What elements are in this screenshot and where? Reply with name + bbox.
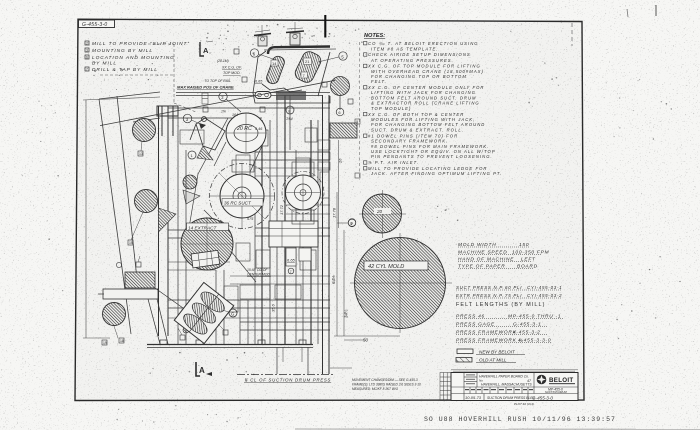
svg-text:FELT.: FELT. [371,79,387,84]
svg-text:DRILL & TAP BY MILL: DRILL & TAP BY MILL [92,67,158,73]
svg-text:60 PLI: 60 PLI [505,285,522,290]
svg-text:SUCT PRESS N.P.: SUCT PRESS N.P. [456,285,505,290]
svg-text:17.72: 17.72 [279,204,284,215]
svg-text:BY MILL: BY MILL [92,61,117,67]
svg-text:⋯TO TOP OF RAIL: ⋯TO TOP OF RAIL [201,79,231,83]
svg-text:PRESS GAGE: PRESS GAGE [456,322,495,328]
svg-text:36 RC SUCT: 36 RC SUCT [224,201,252,206]
svg-text:FELT LENGTHS (BY MILL): FELT LENGTHS (BY MILL) [456,302,546,308]
svg-text:NEW BY BELOIT: NEW BY BELOIT [479,350,516,355]
svg-text:MOUNTING BY MILL: MOUNTING BY MILL [92,48,153,54]
svg-text:3: 3 [86,49,89,53]
svg-text:34½: 34½ [344,309,349,318]
svg-text:OLD AT MILL: OLD AT MILL [479,358,507,363]
svg-text:A: A [199,366,205,375]
svg-text:1⅜: 1⅜ [221,110,226,114]
svg-text:TOP MOD.: TOP MOD. [223,71,241,75]
svg-text:(28.1M): (28.1M) [217,59,229,63]
svg-text:20 RC: 20 RC [236,126,252,132]
svg-text:15: 15 [129,241,133,245]
svg-text:SUCTION DRUM PRESS ELEV.: SUCTION DRUM PRESS ELEV. [487,396,535,400]
svg-text:SUCTION DRUM: SUCTION DRUM [545,390,567,394]
svg-text:15 AY CG OF: 15 AY CG OF [247,268,268,272]
svg-text:CO ⅒ T. AT BELOIT ERECTION USI: CO ⅒ T. AT BELOIT ERECTION USING [368,41,479,46]
svg-text:17.78: 17.78 [332,207,337,218]
svg-text:18: 18 [120,339,124,343]
svg-text:SUCT. DRUM & EXTRACT. ROLL.: SUCT. DRUM & EXTRACT. ROLL. [371,127,464,132]
svg-text:HAVERHILL, MASSACHUSETTS: HAVERHILL, MASSACHUSETTS [481,383,532,387]
svg-text:42 CYL MOLD: 42 CYL MOLD [368,264,404,270]
svg-text:CENTER MOD.: CENTER MOD. [247,273,271,277]
svg-text:575: 575 [247,217,254,221]
svg-text:SO U88 HOVERHILL RUSH 10/11/: SO U88 HOVERHILL RUSH 10/11/96 13:39:57 [424,416,616,423]
svg-text:TOP MODULE): TOP MODULE) [371,106,411,111]
svg-text:CYI-455-03-1: CYI-455-03-1 [527,285,562,290]
svg-text:7⁄84: 7⁄84 [286,117,293,121]
svg-text:CHECK AIRIDE SETUP DIMENSIONS: CHECK AIRIDE SETUP DIMENSIONS [368,52,471,57]
svg-text:19: 19 [103,341,107,345]
svg-text:6.46: 6.46 [255,127,263,131]
svg-text:20: 20 [376,209,383,214]
svg-text:21: 21 [305,59,310,64]
svg-text:14 EXTRACT: 14 EXTRACT [188,225,218,230]
svg-text:164: 164 [232,113,238,117]
svg-text:HAVERHILL PAPER BOARD Co.: HAVERHILL PAPER BOARD Co. [479,375,529,379]
svg-text:⅜ P.T. AIR INLET.: ⅜ P.T. AIR INLET. [368,160,419,165]
svg-text:64⅛: 64⅛ [331,275,336,284]
svg-text:MILL TO PROVIDE “SLIP JOINT”: MILL TO PROVIDE “SLIP JOINT” [92,41,190,47]
svg-text:XX C.G. OF: XX C.G. OF [221,66,242,70]
svg-text:BELOIT: BELOIT [549,377,574,384]
svg-text:PLOT #2 (3×4): PLOT #2 (3×4) [514,402,534,406]
svg-text:7: 7 [290,270,292,274]
svg-text:EXTR PRESS N.P.: EXTR PRESS N.P. [456,293,504,298]
svg-text:75 PLI: 75 PLI [505,293,522,298]
svg-text:NOTES:: NOTES: [364,33,385,39]
svg-text:G-455-3-1: G-455-3-1 [513,322,542,328]
svg-text:MAX RAISED POS OF CRANE: MAX RAISED POS OF CRANE [177,85,234,90]
svg-text:ITEM #8 AS TEMPLATE.: ITEM #8 AS TEMPLATE. [371,46,439,51]
svg-text:10-05-73: 10-05-73 [465,395,482,400]
svg-text:AT OPERATING PRESSURES.: AT OPERATING PRESSURES. [370,58,454,63]
svg-text:CYI-455-03-2: CYI-455-03-2 [527,293,562,298]
svg-text:PIN PENDANTS TO PREVENT LOOSEN: PIN PENDANTS TO PREVENT LOOSENING. [371,154,493,159]
svg-text:LOCATION AND MOUNTING: LOCATION AND MOUNTING [92,55,175,61]
svg-text:13: 13 [139,152,143,156]
svg-text:MEASURED: MC/KF 8 JKT W/O: MEASURED: MC/KF 8 JKT W/O [352,387,399,391]
svg-text:35.6: 35.6 [271,303,276,312]
svg-text:7: 7 [86,68,89,72]
svg-text:G-455-3-0: G-455-3-0 [82,22,108,28]
svg-text:50: 50 [363,338,368,343]
svg-text:6.65: 6.65 [287,258,296,263]
svg-text:JACK. AFTER FINDING OPTIMUM LI: JACK. AFTER FINDING OPTIMUM LIFTING PT. [370,171,502,176]
svg-text:G: G [231,311,234,316]
svg-text:⇅ CL OF SUCTION DRUM PRESS: ⇅ CL OF SUCTION DRUM PRESS [244,378,331,383]
svg-text:A: A [203,46,209,55]
svg-text:6.65: 6.65 [255,80,263,84]
svg-text:MOVEMENT CHANGES/DIM — SEE G-4: MOVEMENT CHANGES/DIM — SEE G-455-3 [352,378,418,382]
svg-text:14: 14 [272,61,277,66]
svg-text:6: 6 [86,56,89,60]
svg-text:2: 2 [86,42,89,46]
svg-text:G-455-3-0: G-455-3-0 [532,396,553,401]
svg-text:FRAME(S): LTD 3980S RAISED 2½: FRAME(S): LTD 3980S RAISED 2½ SIDES 3-10 [352,383,421,387]
